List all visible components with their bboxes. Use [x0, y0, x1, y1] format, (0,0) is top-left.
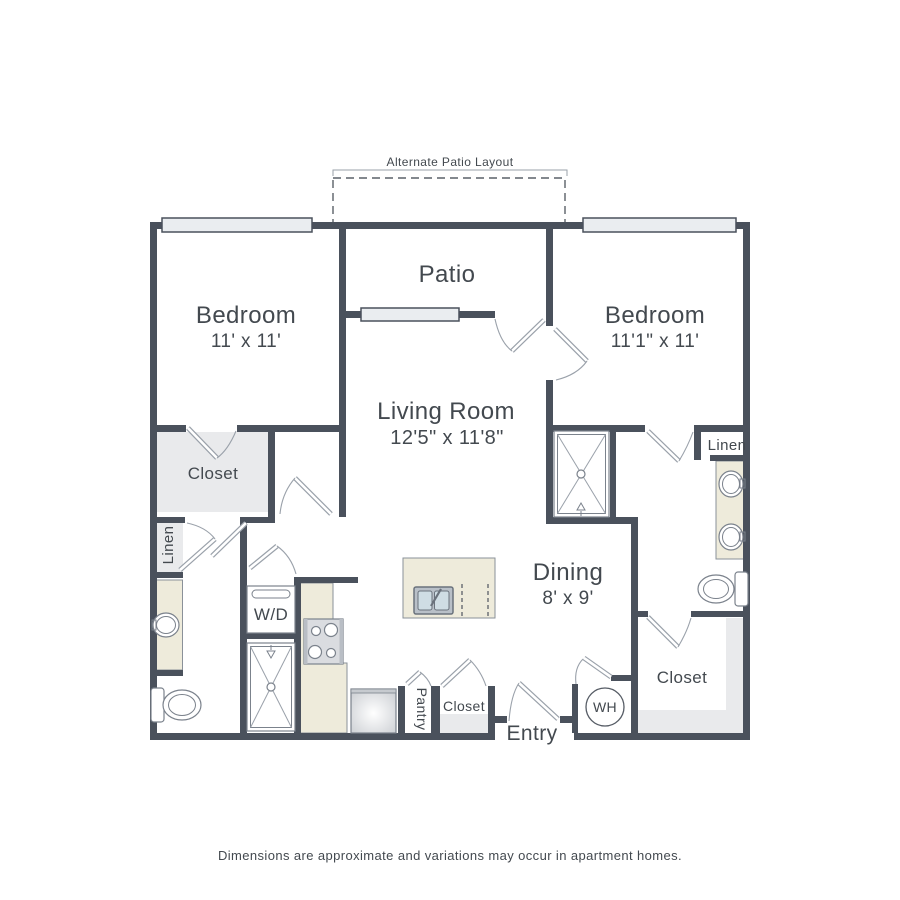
living-room-label: Living Room [377, 398, 515, 425]
patio-window [361, 308, 459, 321]
bedroom-right-window [583, 218, 736, 232]
bath-left-toilet [151, 688, 201, 722]
linen-left-label: Linen [160, 526, 177, 565]
water-heater-label: WH [593, 699, 617, 715]
bedroom-right-closet-fill-bottom [638, 710, 743, 733]
bedroom-right-dims: 11'1" x 11' [611, 331, 699, 352]
stove-burner [327, 649, 336, 658]
floor-plan-page: Alternate Patio Layout [0, 0, 900, 900]
floor-plan-drawing: Alternate Patio Layout [0, 0, 900, 900]
linen-right-label: Linen [708, 437, 747, 454]
washer-dryer-label: W/D [254, 605, 288, 624]
stove [304, 619, 343, 664]
bedroom-left-label: Bedroom [196, 302, 296, 329]
stove-burner [325, 624, 338, 637]
island-sink [414, 587, 453, 614]
bath-right-shower [554, 431, 609, 517]
refrigerator [351, 689, 396, 733]
dining-dims: 8' x 9' [542, 588, 593, 609]
bath-left-shower [247, 643, 295, 731]
closet-hall-label: Closet [443, 698, 485, 714]
dining-label: Dining [533, 559, 603, 586]
living-room-dims: 12'5" x 11'8" [390, 427, 503, 449]
bedroom-left-dims: 11' x 11' [211, 331, 281, 352]
stove-burner [309, 646, 322, 659]
alternate-patio-annotation: Alternate Patio Layout [333, 155, 567, 224]
closet-bedroom-right-label: Closet [657, 668, 708, 687]
disclaimer-text: Dimensions are approximate and variation… [218, 848, 682, 863]
bedroom-right-label: Bedroom [605, 302, 705, 329]
alternate-patio-label: Alternate Patio Layout [387, 155, 514, 169]
bedroom-left-window [162, 218, 312, 232]
pantry-label: Pantry [414, 688, 430, 731]
stove-burner [312, 627, 321, 636]
hall-closet-fill [440, 714, 488, 733]
entry-label: Entry [506, 722, 557, 745]
closet-bedroom-left-label: Closet [188, 464, 239, 483]
bath-right-toilet [698, 572, 748, 606]
patio-label: Patio [419, 261, 476, 288]
